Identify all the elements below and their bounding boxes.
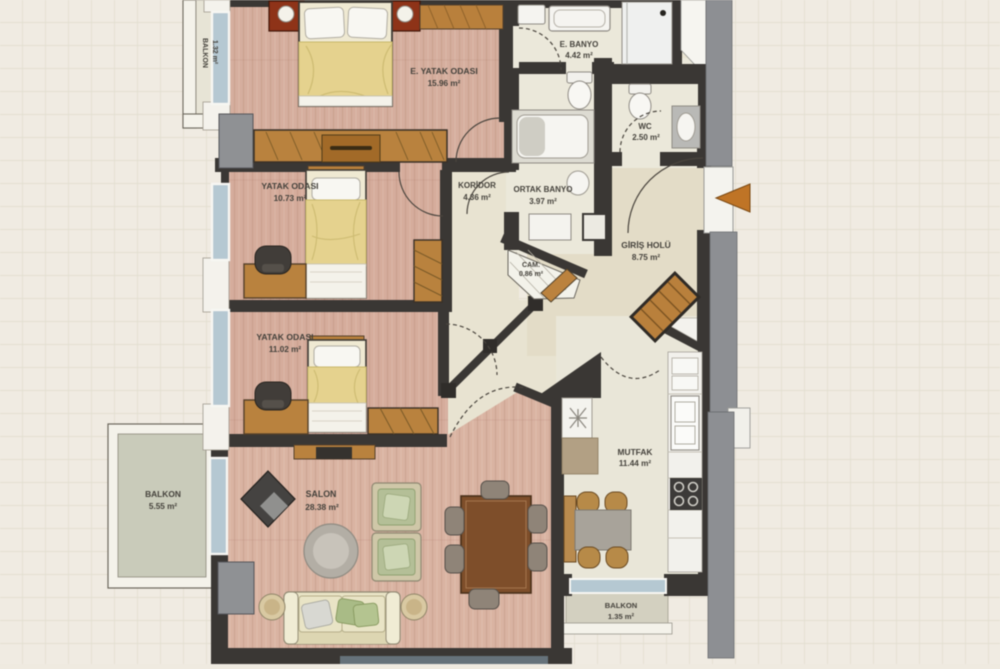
svg-text:4.36 m²: 4.36 m² [463, 193, 491, 202]
svg-text:E. BANYO: E. BANYO [560, 40, 599, 49]
svg-text:5.55 m²: 5.55 m² [149, 502, 177, 511]
svg-text:28.38 m²: 28.38 m² [305, 502, 339, 512]
svg-text:YATAK ODASI: YATAK ODASI [256, 332, 313, 342]
svg-text:MUTFAK: MUTFAK [618, 447, 653, 457]
svg-text:KORİDOR: KORİDOR [458, 181, 496, 190]
svg-text:BALKON: BALKON [145, 489, 181, 499]
svg-text:11.44 m²: 11.44 m² [619, 459, 652, 468]
svg-text:0.86 m²: 0.86 m² [519, 271, 544, 278]
svg-text:15.96 m²: 15.96 m² [428, 79, 461, 88]
svg-text:BALKON: BALKON [201, 38, 208, 68]
svg-text:10.73 m²: 10.73 m² [274, 194, 307, 203]
svg-text:4.42 m²: 4.42 m² [565, 51, 593, 60]
svg-text:1.32 m²: 1.32 m² [211, 40, 218, 65]
svg-text:SALON: SALON [306, 489, 337, 499]
svg-text:2.50 m²: 2.50 m² [632, 133, 660, 142]
svg-text:YATAK ODASI: YATAK ODASI [261, 181, 318, 191]
svg-text:3.97 m²: 3.97 m² [529, 197, 557, 206]
svg-text:ORTAK BANYO: ORTAK BANYO [514, 185, 573, 194]
svg-text:GİRİŞ HOLÜ: GİRİŞ HOLÜ [621, 240, 671, 250]
svg-text:8.75 m²: 8.75 m² [632, 253, 660, 262]
svg-text:E. YATAK ODASI: E. YATAK ODASI [410, 66, 478, 76]
svg-text:BALKON: BALKON [605, 601, 637, 610]
svg-text:CAM.: CAM. [522, 262, 540, 269]
svg-text:1.35 m²: 1.35 m² [608, 612, 635, 621]
svg-text:11.02 m²: 11.02 m² [269, 345, 302, 354]
svg-text:WC: WC [638, 122, 652, 131]
